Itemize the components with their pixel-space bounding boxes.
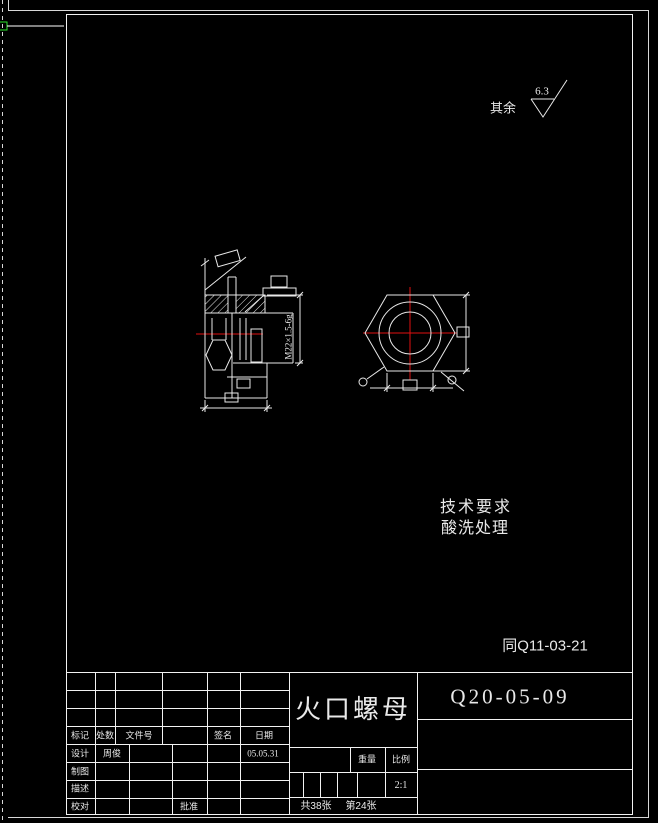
design-date: 05.05.31 bbox=[247, 750, 279, 759]
row-design-label: 设计 bbox=[71, 750, 89, 759]
header-count: 处数 bbox=[96, 732, 114, 741]
row-trace-label: 描述 bbox=[71, 785, 89, 794]
header-sign: 签名 bbox=[214, 732, 232, 741]
part-name: 火口螺母 bbox=[295, 696, 411, 722]
header-date: 日期 bbox=[255, 732, 273, 741]
surface-note: 其余 bbox=[490, 102, 516, 115]
leader-circle bbox=[359, 378, 367, 386]
header-mark: 标记 bbox=[71, 732, 89, 741]
header-doc-no: 文件号 bbox=[125, 732, 152, 741]
scale-value: 2:1 bbox=[395, 781, 408, 791]
hex-chamfer-profile bbox=[206, 340, 232, 370]
dimension-text-box bbox=[457, 327, 469, 337]
sheets-total: 共38张 bbox=[300, 802, 331, 812]
thread-dimension: M22×1.5-6g bbox=[285, 314, 294, 359]
hatch-area bbox=[236, 295, 265, 313]
weight-label: 重量 bbox=[358, 756, 376, 765]
crosshair-cursor bbox=[0, 22, 64, 30]
scale-label: 比例 bbox=[392, 756, 410, 765]
hatch-area bbox=[205, 295, 228, 313]
sheet-current: 第24张 bbox=[345, 802, 376, 812]
reference-note: 同Q11-03-21 bbox=[502, 639, 588, 654]
tech-requirements-item: 酸洗处理 bbox=[441, 521, 509, 537]
dimension-text-box bbox=[271, 276, 287, 287]
drawing-number: Q20-05-09 bbox=[450, 687, 569, 708]
row-draft-label: 制图 bbox=[71, 768, 89, 777]
dimension-text-box bbox=[237, 379, 250, 388]
designer-name: 周俊 bbox=[103, 750, 121, 759]
surface-value: 6.3 bbox=[535, 87, 549, 98]
approve-label: 批准 bbox=[180, 803, 198, 812]
leader-circle bbox=[448, 376, 456, 384]
cad-viewport: 其余 6.3 M22×1.5-6g 技术要求 酸洗处理 同Q11-03-21 火… bbox=[0, 0, 658, 823]
tech-requirements-title: 技术要求 bbox=[440, 500, 512, 516]
centerlines bbox=[363, 287, 457, 380]
row-check-label: 校对 bbox=[71, 803, 89, 812]
front-view bbox=[359, 287, 470, 392]
